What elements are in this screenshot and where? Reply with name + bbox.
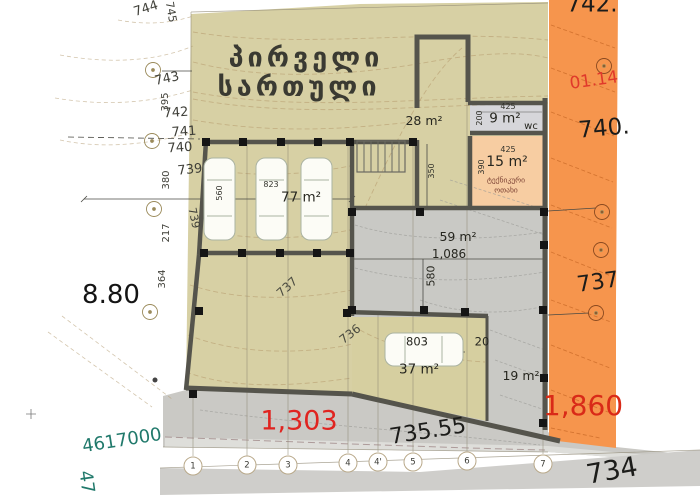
room-19-area: 19 m² (502, 370, 539, 383)
grid-bubble-4p: 4' (369, 453, 388, 472)
grid-bubble-7: 7 (534, 455, 553, 474)
offset-364: 364 (158, 269, 168, 288)
dim-wc-height: 200 (476, 110, 484, 125)
dim-garage-width: 823 (263, 181, 278, 189)
room-28-area: 28 m² (405, 115, 442, 128)
room-59-area: 59 m² (439, 231, 476, 244)
grid-bubble-4: 4 (339, 454, 358, 473)
floor-plan-canvas: პირველი სართული 28 m² 425 9 m² wc 200 42… (0, 0, 700, 495)
dim-tech-width: 425 (500, 146, 515, 154)
room-tech-name-1: ტექნიკური (487, 176, 525, 184)
dim-tech-height: 390 (478, 159, 486, 174)
grid-bubble-5: 5 (404, 453, 423, 472)
grid-bubble-6: 6 (458, 452, 477, 471)
grid-bubble-1: 1 (184, 457, 203, 476)
room-tech-name-2: ოთახი (494, 186, 518, 194)
elev-742: 742. (566, 0, 617, 17)
elev-737: 737 (576, 269, 621, 297)
room-77-area: 77 m² (281, 191, 321, 205)
dim-lower-width: 803 (406, 336, 428, 348)
page-title-line-2: სართული (217, 74, 380, 101)
page-title-line-1: პირველი (229, 45, 384, 72)
elev-880: 8.80 (82, 282, 140, 308)
grid-bubble-3: 3 (279, 456, 298, 475)
geo-easting: 47 (75, 469, 96, 494)
room-37-area: 37 m² (399, 363, 439, 377)
orange-parcel (549, 0, 618, 448)
dim-garage-height: 560 (216, 185, 224, 200)
dim-stair: 350 (428, 163, 436, 178)
parcel-area-1860: 1,860 (543, 392, 623, 420)
contour-742: 742 (163, 106, 189, 121)
contour-739: 739 (177, 162, 203, 178)
contour-741: 741 (171, 125, 197, 140)
offset-380: 380 (162, 170, 172, 189)
dim-terrace-height: 580 (426, 266, 437, 287)
contour-740: 740 (167, 141, 193, 156)
elev-740: 740. (577, 115, 630, 142)
room-15-area: 15 m² (486, 155, 528, 169)
offset-217: 217 (162, 223, 172, 242)
survey-point (153, 378, 158, 383)
parcel-area-1303: 1,303 (260, 408, 337, 435)
room-wc-label: wc (524, 122, 538, 132)
contour-745: 745 (164, 1, 178, 24)
room-9-area: 9 m² (489, 112, 520, 126)
dim-lower-offset: 20 (475, 336, 490, 348)
dim-terrace-width: 1,086 (432, 248, 466, 260)
grid-bubble-2: 2 (238, 456, 257, 475)
